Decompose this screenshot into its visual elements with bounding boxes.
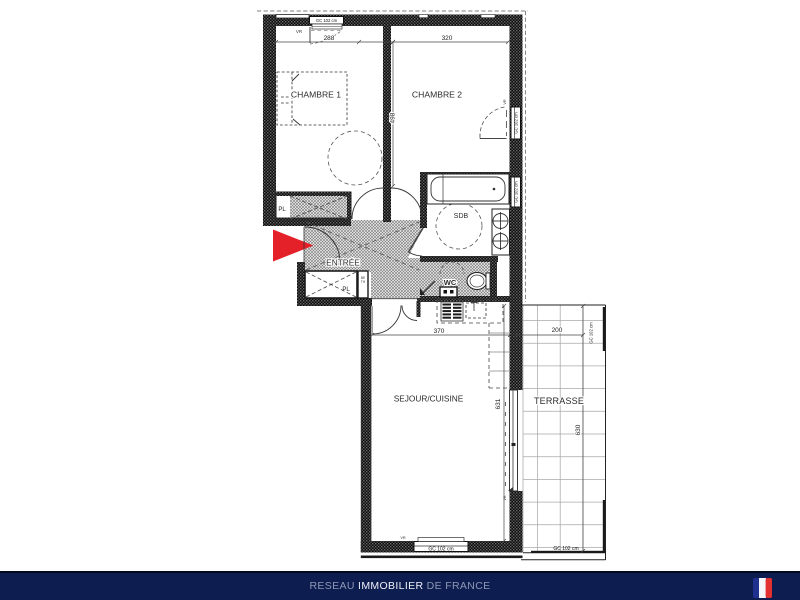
svg-text:498: 498 [390,112,397,123]
svg-text:370: 370 [434,328,445,335]
svg-text:320: 320 [442,35,453,42]
svg-text:VR: VR [296,29,303,34]
svg-text:TH: TH [361,280,366,284]
svg-text:631: 631 [495,398,502,409]
svg-text:CHAMBRE 2: CHAMBRE 2 [412,90,462,100]
svg-text:WC: WC [444,278,457,287]
svg-text:200: 200 [552,327,563,334]
svg-text:GC 102 cm: GC 102 cm [316,18,338,23]
svg-text:288: 288 [324,35,335,42]
svg-text:GC 102 cm: GC 102 cm [553,546,578,552]
svg-text:GC 102 cm: GC 102 cm [514,181,519,203]
svg-text:VR: VR [503,495,507,501]
svg-text:GC 102 cm: GC 102 cm [428,547,453,553]
svg-text:VR: VR [400,536,406,540]
svg-text:PL: PL [342,287,350,293]
svg-text:CHAMBRE 1: CHAMBRE 1 [291,90,341,100]
svg-text:TERRASSE: TERRASSE [534,396,584,406]
svg-text:VR: VR [503,99,507,105]
svg-text:ENTRÉE: ENTRÉE [326,258,360,268]
svg-text:PL: PL [278,207,286,213]
svg-text:GC 102 cm: GC 102 cm [589,322,594,344]
svg-text:GC 102 cm: GC 102 cm [514,112,519,134]
svg-text:SEJOUR/CUISINE: SEJOUR/CUISINE [394,394,464,404]
svg-text:SDB: SDB [454,213,469,220]
svg-text:630: 630 [575,424,582,435]
